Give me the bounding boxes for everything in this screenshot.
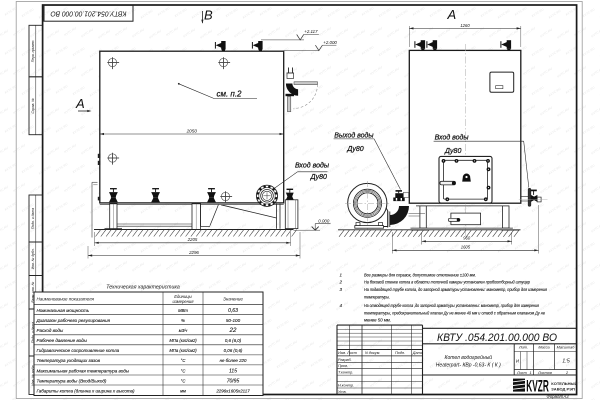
svg-text:KVTC.RU: KVTC.RU (573, 221, 587, 232)
svg-text:Вход воды: Вход воды (295, 161, 330, 169)
svg-text:KVTC.RU: KVTC.RU (539, 66, 553, 77)
svg-text:KVTC.RU: KVTC.RU (267, 26, 281, 37)
svg-text:KVTC.RU: KVTC.RU (301, 262, 315, 273)
svg-text:KVTC.RU: KVTC.RU (80, 222, 94, 233)
svg-text:KVTC.RU: KVTC.RU (327, 85, 341, 96)
svg-text:KVTC.RU: KVTC.RU (395, 47, 409, 58)
svg-text:KVTC.RU: KVTC.RU (514, 318, 528, 329)
svg-text:KVTC.RU: KVTC.RU (267, 299, 281, 310)
svg-text:KVTC.RU: KVTC.RU (29, 27, 43, 38)
svg-text:KVTC.RU: KVTC.RU (63, 143, 77, 154)
svg-text:KVTC.RU: KVTC.RU (182, 27, 196, 38)
svg-text:KVTC.RU: KVTC.RU (301, 145, 315, 156)
svg-text:Подп.: Подп. (395, 351, 405, 355)
svg-text:KVTC.RU: KVTC.RU (97, 262, 111, 273)
svg-text:KVTC.RU: KVTC.RU (488, 27, 502, 38)
svg-text:KVTC.RU: KVTC.RU (352, 0, 366, 1)
svg-text:Перв. примен.: Перв. примен. (31, 40, 35, 63)
svg-text:не более 220: не более 220 (220, 358, 247, 363)
svg-text:КВТУ .054.201.00.000 ВО: КВТУ .054.201.00.000 ВО (437, 332, 557, 344)
svg-text:Котел водогрейный: Котел водогрейный (445, 354, 493, 361)
svg-text:KVTC.RU: KVTC.RU (259, 396, 273, 400)
svg-text:KVTC.RU: KVTC.RU (310, 357, 324, 368)
svg-text:KVTC.RU: KVTC.RU (395, 125, 409, 136)
svg-text:KVTC.RU: KVTC.RU (29, 66, 43, 77)
svg-text:KVTC.RU: KVTC.RU (369, 377, 383, 388)
svg-text:KVTC.RU: KVTC.RU (335, 300, 349, 311)
svg-text:KVTC.RU: KVTC.RU (46, 106, 60, 117)
svg-text:KVTC.RU: KVTC.RU (12, 104, 26, 115)
svg-text:KVTC.RU: KVTC.RU (0, 0, 10, 1)
svg-text:KVTC.RU: KVTC.RU (310, 396, 324, 400)
svg-text:0,06 (0,6): 0,06 (0,6) (224, 348, 243, 353)
svg-text:Н.контр.: Н.контр. (338, 384, 354, 388)
svg-text:KVTC.RU: KVTC.RU (327, 7, 341, 18)
svg-text:22: 22 (229, 327, 237, 334)
svg-text:KVTC.RU: KVTC.RU (395, 320, 409, 331)
svg-text:KVTC.RU: KVTC.RU (89, 203, 103, 214)
svg-text:KVTC.RU: KVTC.RU (497, 242, 511, 253)
svg-text:KVTC.RU: KVTC.RU (242, 281, 256, 292)
svg-text:KVTC.RU: KVTC.RU (46, 67, 60, 78)
svg-text:KVTC.RU: KVTC.RU (556, 67, 570, 78)
svg-text:KVTC.RU: KVTC.RU (157, 396, 171, 400)
svg-text:KVTC.RU: KVTC.RU (335, 261, 349, 272)
svg-text:1: 1 (529, 371, 531, 375)
svg-text:KVTC.RU: KVTC.RU (522, 260, 536, 271)
svg-text:KVTC.RU: KVTC.RU (505, 0, 519, 1)
svg-text:KVTC.RU: KVTC.RU (106, 396, 120, 400)
svg-text:KVTC.RU: KVTC.RU (573, 26, 587, 37)
svg-text:Дата: Дата (412, 351, 423, 355)
svg-text:KVTC.RU: KVTC.RU (573, 260, 587, 271)
svg-text:KVTC.RU: KVTC.RU (293, 8, 307, 19)
svg-text:KVTC.RU: KVTC.RU (463, 396, 477, 400)
svg-text:KVTC.RU: KVTC.RU (46, 145, 60, 156)
svg-text:KVTC.RU: KVTC.RU (352, 106, 366, 117)
svg-text:KVTC.RU: KVTC.RU (369, 338, 383, 349)
svg-text:KVTC.RU: KVTC.RU (471, 377, 485, 388)
svg-text:KVTC.RU: KVTC.RU (284, 261, 298, 272)
svg-text:KVTC.RU: KVTC.RU (12, 182, 26, 193)
svg-text:KVTC.RU: KVTC.RU (480, 7, 494, 18)
svg-text:KVTC.RU: KVTC.RU (259, 240, 273, 251)
svg-text:KVTC.RU: KVTC.RU (63, 182, 77, 193)
svg-text:KVTC.RU: KVTC.RU (284, 144, 298, 155)
svg-text:KVTC.RU: KVTC.RU (556, 262, 570, 273)
svg-text:KVTC.RU: KVTC.RU (276, 319, 290, 330)
svg-text:KVTC.RU: KVTC.RU (514, 396, 528, 400)
svg-text:KVTC.RU: KVTC.RU (55, 201, 69, 212)
svg-text:3: 3 (340, 287, 343, 292)
svg-text:2050: 2050 (186, 128, 198, 133)
svg-text:KVTC.RU: KVTC.RU (573, 65, 587, 76)
svg-text:KVTC.RU: KVTC.RU (556, 223, 570, 234)
svg-text:KVTC.RU: KVTC.RU (539, 261, 553, 272)
svg-text:KVTC.RU: KVTC.RU (420, 260, 434, 271)
svg-text:ЗАВОД РЭП: ЗАВОД РЭП (551, 387, 575, 392)
svg-text:KVTC.RU: KVTC.RU (327, 202, 341, 213)
svg-text:KVTC.RU: KVTC.RU (582, 319, 596, 330)
svg-text:KVTC.RU: KVTC.RU (454, 379, 468, 390)
svg-text:KVTC.RU: KVTC.RU (573, 299, 587, 310)
svg-text:KVTC.RU: KVTC.RU (531, 163, 545, 174)
svg-text:KVTC.RU: KVTC.RU (378, 358, 392, 369)
svg-text:KVTC.RU: KVTC.RU (293, 359, 307, 370)
svg-text:KVTC.RU: KVTC.RU (284, 378, 298, 389)
svg-text:KVTC.RU: KVTC.RU (208, 279, 222, 290)
svg-text:Температура уходящих газов: Температура уходящих газов (37, 358, 101, 363)
svg-text:KVTC.RU: KVTC.RU (72, 163, 86, 174)
svg-text:KVTC.RU: KVTC.RU (242, 8, 256, 19)
svg-text:KVTC.RU: KVTC.RU (454, 0, 468, 1)
svg-text:KVTC.RU: KVTC.RU (548, 203, 562, 214)
svg-text:KVTC.RU: KVTC.RU (318, 143, 332, 154)
svg-text:2296х1605х2117: 2296х1605х2117 (215, 388, 250, 393)
svg-text:KVTC.RU: KVTC.RU (488, 261, 502, 272)
svg-text:2296: 2296 (188, 250, 199, 255)
svg-text:KVTC.RU: KVTC.RU (573, 143, 587, 154)
svg-text:KVTC.RU: KVTC.RU (318, 338, 332, 349)
svg-text:KVTC.RU: KVTC.RU (301, 184, 315, 195)
svg-text:KVTC.RU: KVTC.RU (72, 85, 86, 96)
svg-text:KVTC.RU: KVTC.RU (352, 67, 366, 78)
svg-text:KVTC.RU: KVTC.RU (352, 379, 366, 390)
svg-text:KVTC.RU: KVTC.RU (590, 261, 600, 272)
svg-text:KVTC.RU: KVTC.RU (531, 202, 545, 213)
svg-text:KVTC.RU: KVTC.RU (97, 0, 111, 1)
svg-text:KVTC.RU: KVTC.RU (590, 378, 600, 389)
svg-text:KVTC.RU: KVTC.RU (539, 183, 553, 194)
svg-text:KVTC.RU: KVTC.RU (327, 241, 341, 252)
svg-text:На боковой стенке котла в обла: На боковой стенке котла в области топочн… (364, 280, 530, 285)
svg-text:KVTC.RU: KVTC.RU (420, 26, 434, 37)
svg-text:KVTC.RU: KVTC.RU (403, 28, 417, 39)
svg-text:KVTC.RU: KVTC.RU (386, 378, 400, 389)
svg-text:KVTC.RU: KVTC.RU (46, 184, 60, 195)
svg-text:KVTC.RU: KVTC.RU (216, 221, 230, 232)
svg-text:температуры.: температуры. (364, 294, 390, 299)
svg-text:KVTC.RU: KVTC.RU (0, 67, 10, 78)
svg-text:KVTC.RU: KVTC.RU (0, 184, 10, 195)
svg-text:Вход воды: Вход воды (435, 134, 470, 142)
svg-text:KVTC.RU: KVTC.RU (395, 86, 409, 97)
svg-text:Габариты котла (длинна х ширин: Габариты котла (длинна х ширина х высота… (37, 388, 136, 393)
svg-text:KVTC.RU: KVTC.RU (38, 8, 52, 19)
svg-text:KVTC.RU: KVTC.RU (386, 144, 400, 155)
svg-text:KVTC.RU: KVTC.RU (556, 145, 570, 156)
svg-text:KVTC.RU: KVTC.RU (259, 6, 273, 17)
svg-text:KVTC.RU: KVTC.RU (556, 0, 570, 1)
svg-text:KVTC.RU: KVTC.RU (590, 300, 600, 311)
svg-text:см. п.2: см. п.2 (216, 90, 242, 99)
svg-text:KVTC.RU: KVTC.RU (378, 85, 392, 96)
svg-text:Пров.: Пров. (338, 364, 348, 368)
svg-text:KVTC.RU: KVTC.RU (548, 320, 562, 331)
svg-text:KVTC.RU: KVTC.RU (293, 125, 307, 136)
svg-text:KVTC.RU: KVTC.RU (548, 125, 562, 136)
svg-text:KVTC.RU: KVTC.RU (344, 86, 358, 97)
svg-text:KVTC.RU: KVTC.RU (386, 66, 400, 77)
svg-text:KVTC.RU: KVTC.RU (233, 27, 247, 38)
svg-text:KVTC.RU: KVTC.RU (522, 221, 536, 232)
svg-text:Выход воды: Выход воды (334, 131, 374, 139)
svg-text:менее 50 мм.: менее 50 мм. (364, 318, 391, 323)
svg-text:KVTC.RU: KVTC.RU (46, 28, 60, 39)
svg-text:KVTC.RU: KVTC.RU (531, 46, 545, 57)
svg-text:50-100: 50-100 (226, 318, 241, 323)
svg-text:KVTC.RU: KVTC.RU (378, 7, 392, 18)
svg-text:KVTC.RU: KVTC.RU (55, 45, 69, 56)
svg-text:KVTC.RU: KVTC.RU (216, 260, 230, 271)
svg-text:KVTC.RU: KVTC.RU (310, 123, 324, 134)
svg-text:KVTC.RU: KVTC.RU (284, 339, 298, 350)
svg-text:А3: А3 (563, 394, 570, 399)
svg-text:Т.контр.: Т.контр. (338, 371, 353, 375)
svg-text:KVTC.RU: KVTC.RU (505, 28, 519, 39)
svg-text:KVTC.RU: KVTC.RU (80, 144, 94, 155)
svg-text:KVTC.RU: KVTC.RU (0, 301, 10, 312)
svg-text:KVTC.RU: KVTC.RU (199, 262, 213, 273)
svg-text:KVTC.RU: KVTC.RU (225, 280, 239, 291)
svg-text:KVTC.RU: KVTC.RU (165, 26, 179, 37)
svg-text:КОТЕЛЬНЫЙ: КОТЕЛЬНЫЙ (551, 381, 577, 386)
svg-text:KVTC.RU: KVTC.RU (386, 105, 400, 116)
svg-text:KVTC.RU: KVTC.RU (335, 66, 349, 77)
svg-text:KVTC.RU: KVTC.RU (582, 163, 596, 174)
svg-text:KVTC.RU: KVTC.RU (352, 28, 366, 39)
svg-text:KVTC.RU: KVTC.RU (514, 6, 528, 17)
svg-text:KVTC.RU: KVTC.RU (369, 26, 383, 37)
svg-text:Рабочее давление воды: Рабочее давление воды (37, 338, 88, 343)
svg-text:KVTC.RU: KVTC.RU (361, 6, 375, 17)
svg-text:1260: 1260 (460, 23, 470, 28)
svg-text:KVTC.RU: KVTC.RU (522, 65, 536, 76)
svg-text:KVTC.RU: KVTC.RU (539, 222, 553, 233)
svg-text:KVTC.RU: KVTC.RU (318, 299, 332, 310)
svg-text:KVTC.RU: KVTC.RU (0, 8, 1, 19)
svg-text:KVTC.RU: KVTC.RU (80, 183, 94, 194)
svg-text:KVTC.RU: KVTC.RU (369, 260, 383, 271)
svg-text:мм: мм (180, 388, 186, 393)
svg-text:KVTC.RU: KVTC.RU (488, 378, 502, 389)
svg-text:KVTC.RU: KVTC.RU (386, 27, 400, 38)
svg-text:KVTC.RU: KVTC.RU (165, 260, 179, 271)
svg-text:KVTC.RU: KVTC.RU (437, 27, 451, 38)
svg-text:KVTC.RU: KVTC.RU (335, 222, 349, 233)
svg-text:KVTC.RU: KVTC.RU (497, 8, 511, 19)
svg-text:0,6 (6,0): 0,6 (6,0) (225, 338, 242, 343)
svg-text:KVTC.RU: KVTC.RU (38, 86, 52, 97)
svg-text:KVTC.RU: KVTC.RU (148, 262, 162, 273)
svg-text:KVTC.RU: KVTC.RU (293, 320, 307, 331)
svg-text:KVTC.RU: KVTC.RU (522, 104, 536, 115)
svg-text:KVTC.RU: KVTC.RU (531, 124, 545, 135)
svg-text:KVTC.RU: KVTC.RU (267, 377, 281, 388)
svg-text:KVTC.RU: KVTC.RU (131, 27, 145, 38)
svg-text:KVTC.RU: KVTC.RU (539, 27, 553, 38)
svg-text:KVTC.RU: KVTC.RU (21, 124, 35, 135)
svg-text:KVTC.RU: KVTC.RU (301, 0, 315, 1)
svg-text:Все размеры для справок, допус: Все размеры для справок, допустимое откл… (364, 272, 476, 277)
svg-text:KVTC.RU: KVTC.RU (0, 379, 10, 390)
svg-text:KVTC.RU: KVTC.RU (12, 299, 26, 310)
svg-text:KVTC.RU: KVTC.RU (157, 240, 171, 251)
svg-text:KVTC.RU: KVTC.RU (276, 7, 290, 18)
svg-text:KVTC.RU: KVTC.RU (21, 85, 35, 96)
svg-text:KVTC.RU: KVTC.RU (72, 202, 86, 213)
svg-text:KVTC.RU: KVTC.RU (361, 396, 375, 400)
svg-text:KVTC.RU: KVTC.RU (590, 183, 600, 194)
svg-text:KVTC.RU: KVTC.RU (63, 221, 77, 232)
svg-text:KVTC.RU: KVTC.RU (395, 242, 409, 253)
svg-text:KVTC.RU: KVTC.RU (446, 320, 460, 331)
svg-text:KVTC.RU: KVTC.RU (106, 240, 120, 251)
svg-text:А: А (75, 96, 85, 111)
svg-text:KVTC.RU: KVTC.RU (38, 47, 52, 58)
svg-text:KVTC.RU: KVTC.RU (548, 164, 562, 175)
svg-text:KVTC.RU: KVTC.RU (0, 320, 1, 331)
svg-text:KVTC.RU: KVTC.RU (590, 222, 600, 233)
svg-text:KVTC.RU: KVTC.RU (310, 279, 324, 290)
svg-text:%: % (181, 318, 185, 323)
svg-text:KVTC.RU: KVTC.RU (590, 105, 600, 116)
svg-text:KVTC.RU: KVTC.RU (582, 7, 596, 18)
svg-text:KVTC.RU: KVTC.RU (38, 203, 52, 214)
svg-text:KVTC.RU: KVTC.RU (369, 143, 383, 154)
svg-text:KVTC.RU: KVTC.RU (582, 358, 596, 369)
svg-text:Температура воды (Вход/Выход): Температура воды (Вход/Выход) (37, 378, 107, 383)
svg-text:м3/ч: м3/ч (179, 328, 188, 333)
svg-text:KVTC.RU: KVTC.RU (318, 377, 332, 388)
svg-text:KVTC.RU: KVTC.RU (556, 301, 570, 312)
svg-text:KVTC.RU: KVTC.RU (29, 144, 43, 155)
svg-text:KVTC.RU: KVTC.RU (233, 222, 247, 233)
svg-text:KVTC.RU: KVTC.RU (378, 46, 392, 57)
svg-text:Расход воды: Расход воды (37, 328, 64, 333)
svg-text:KVTC.RU: KVTC.RU (46, 262, 60, 273)
svg-text:KVTC.RU: KVTC.RU (335, 27, 349, 38)
svg-text:KVTC.RU: KVTC.RU (0, 359, 1, 370)
svg-text:На отводящей трубе котла ,до з: На отводящей трубе котла ,до запорной ар… (364, 303, 540, 308)
svg-text:KVTC.RU: KVTC.RU (46, 0, 60, 1)
svg-text:KVTC.RU: KVTC.RU (12, 338, 26, 349)
svg-text:KVTC.RU: KVTC.RU (344, 164, 358, 175)
svg-text:KVTC.RU: KVTC.RU (395, 8, 409, 19)
svg-text:измерения: измерения (173, 299, 195, 304)
svg-text:KVTC.RU: KVTC.RU (378, 163, 392, 174)
svg-text:KVTC.RU: KVTC.RU (412, 6, 426, 17)
svg-text:KVTC.RU: KVTC.RU (361, 162, 375, 173)
svg-text:Подп. и дата: Подп. и дата (31, 208, 35, 229)
svg-text:KVTC.RU: KVTC.RU (361, 240, 375, 251)
svg-text:МПа (кгс/см2): МПа (кгс/см2) (169, 338, 197, 343)
svg-text:KVTC.RU: KVTC.RU (293, 281, 307, 292)
svg-text:Справ. №: Справ. № (31, 98, 35, 114)
svg-text:Формат: Формат (547, 394, 564, 399)
svg-text:KVTC.RU: KVTC.RU (276, 280, 290, 291)
svg-text:KVTC.RU: KVTC.RU (225, 7, 239, 18)
svg-text:KVTC.RU: KVTC.RU (38, 242, 52, 253)
svg-text:KVTC.RU: KVTC.RU (55, 84, 69, 95)
svg-text:Изм. Лист: Изм. Лист (338, 351, 357, 355)
svg-text:2: 2 (339, 280, 343, 285)
svg-text:0.000: 0.000 (318, 218, 330, 223)
svg-text:KVTC.RU: KVTC.RU (242, 242, 256, 253)
svg-text:KVTC.RU: KVTC.RU (55, 240, 69, 251)
svg-text:KVTC.RU: KVTC.RU (276, 358, 290, 369)
svg-text:KVTC.RU: KVTC.RU (378, 241, 392, 252)
svg-text:KVTC.RU: KVTC.RU (72, 124, 86, 135)
svg-text:KVTC.RU: KVTC.RU (548, 359, 562, 370)
svg-text:Инв. № дубл.: Инв. № дубл. (31, 248, 35, 269)
svg-text:КВТУ.054.201.00.000 ВО: КВТУ.054.201.00.000 ВО (50, 9, 126, 18)
svg-text:KVTC.RU: KVTC.RU (548, 281, 562, 292)
svg-text:KVTC.RU: KVTC.RU (157, 6, 171, 17)
svg-text:температуры, предохранительный: температуры, предохранительный клапан Ду… (364, 310, 545, 315)
svg-text:KVTC.RU: KVTC.RU (114, 26, 128, 37)
svg-text:KVTC.RU: KVTC.RU (0, 262, 10, 273)
svg-text:KVTC.RU: KVTC.RU (352, 340, 366, 351)
svg-text:KVTC.RU: KVTC.RU (21, 163, 35, 174)
svg-text:960: 960 (463, 236, 471, 241)
svg-text:+2.000: +2.000 (323, 40, 337, 45)
svg-text:KVTC.RU: KVTC.RU (182, 261, 196, 272)
svg-text:Листов: Листов (537, 371, 552, 375)
svg-text:KVTC.RU: KVTC.RU (310, 318, 324, 329)
svg-text:KVTC.RU: KVTC.RU (590, 144, 600, 155)
svg-text:KVTC.RU: KVTC.RU (318, 65, 332, 76)
svg-text:KVTC.RU: KVTC.RU (582, 46, 596, 57)
svg-text:KVTC.RU: KVTC.RU (301, 223, 315, 234)
svg-text:KVTC.RU: KVTC.RU (437, 261, 451, 272)
svg-text:KVTC.RU: KVTC.RU (140, 8, 154, 19)
svg-text:KVTC.RU: KVTC.RU (327, 46, 341, 57)
svg-text:KVTC.RU: KVTC.RU (12, 221, 26, 232)
svg-text:KVTC.RU: KVTC.RU (199, 28, 213, 39)
svg-text:KVTC.RU: KVTC.RU (403, 340, 417, 351)
svg-text:0,63: 0,63 (228, 308, 238, 314)
svg-text:Ду80: Ду80 (346, 146, 363, 153)
svg-text:1:5: 1:5 (562, 359, 570, 365)
svg-text:KVTC.RU: KVTC.RU (344, 8, 358, 19)
svg-text:KVTC.RU: KVTC.RU (123, 202, 137, 213)
svg-text:KVTC.RU: KVTC.RU (344, 242, 358, 253)
svg-text:KVTC.RU: KVTC.RU (12, 26, 26, 37)
svg-text:KVTC.RU: KVTC.RU (301, 340, 315, 351)
svg-text:KVTC.RU: KVTC.RU (250, 262, 264, 273)
svg-text:KVTC.RU: KVTC.RU (148, 28, 162, 39)
svg-text:KVTC.RU: KVTC.RU (361, 84, 375, 95)
svg-text:KVTC.RU: KVTC.RU (12, 143, 26, 154)
svg-text:KVTC.RU: KVTC.RU (412, 396, 426, 400)
svg-text:KVTC.RU: KVTC.RU (454, 28, 468, 39)
svg-text:KVTC.RU: KVTC.RU (140, 203, 154, 214)
svg-text:KVTC.RU: KVTC.RU (0, 47, 1, 58)
svg-text:KVTC.RU: KVTC.RU (0, 106, 10, 117)
svg-text:Масштаб: Масштаб (557, 345, 576, 349)
svg-text:KVTC.RU: KVTC.RU (318, 26, 332, 37)
svg-text:KVTC.RU: KVTC.RU (463, 6, 477, 17)
svg-text:Гидравлическое сопротивление к: Гидравлическое сопротивление котла (37, 348, 120, 353)
svg-text:KVTC.RU: KVTC.RU (55, 162, 69, 173)
svg-text:KVTC.RU: KVTC.RU (582, 124, 596, 135)
svg-text:KVTC.RU: KVTC.RU (590, 339, 600, 350)
svg-text:KVTC.RU: KVTC.RU (403, 379, 417, 390)
svg-text:Максимальная рабочая температу: Максимальная рабочая температура воды (37, 368, 130, 373)
svg-text:KVTC.RU: KVTC.RU (80, 27, 94, 38)
svg-text:KVTC.RU: KVTC.RU (301, 301, 315, 312)
